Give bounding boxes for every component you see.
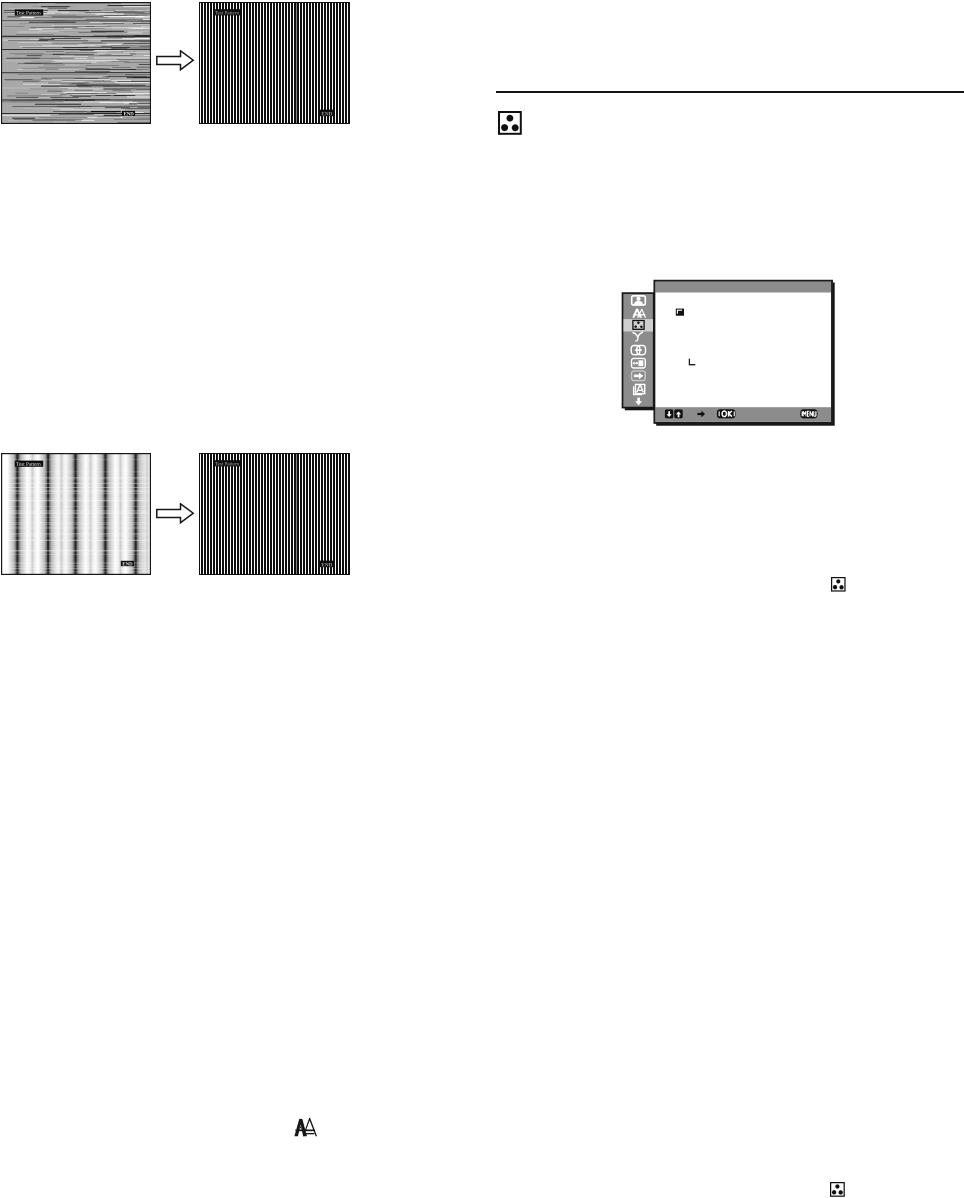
svg-text:END: END	[122, 563, 133, 568]
svg-text:Test Pattern: Test Pattern	[16, 462, 41, 468]
svg-text:END: END	[123, 112, 134, 117]
svg-text:Test Pattern: Test Pattern	[16, 11, 41, 17]
svg-text:END: END	[321, 562, 332, 568]
svg-text:Test Pattern: Test Pattern	[215, 461, 240, 467]
svg-text:END: END	[321, 111, 332, 117]
svg-text:Test Pattern: Test Pattern	[215, 10, 240, 16]
